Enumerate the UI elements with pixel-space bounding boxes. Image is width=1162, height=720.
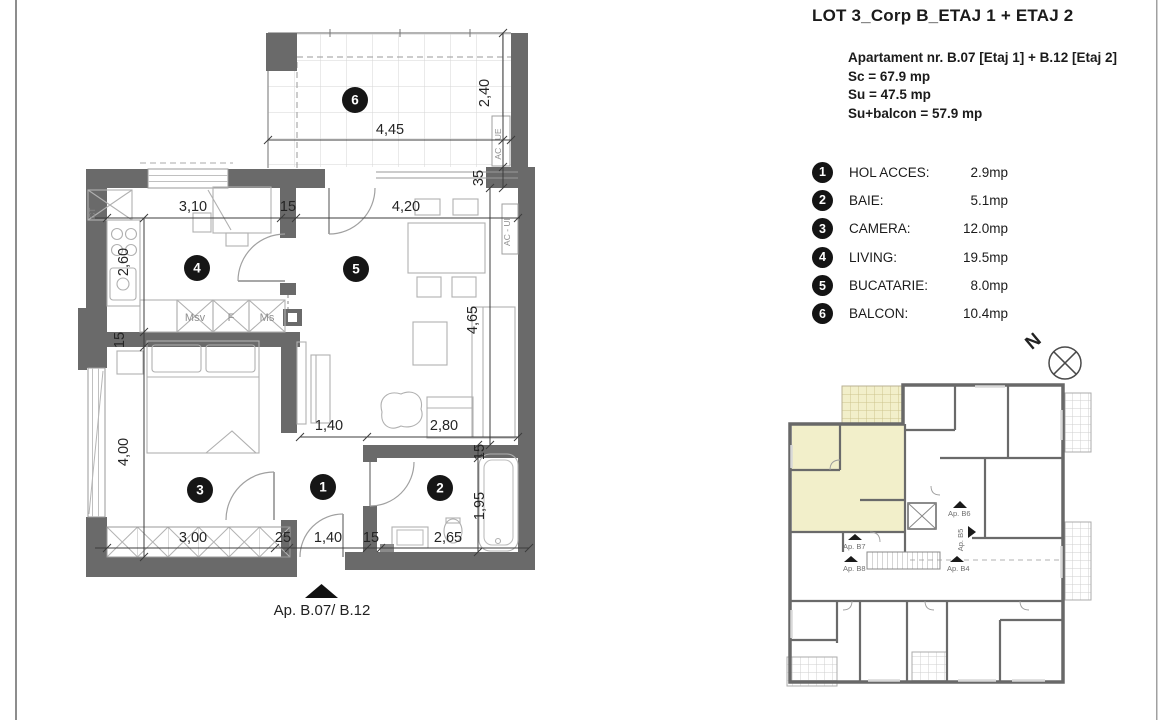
doors [226, 188, 414, 557]
drawing-sheet: 4,45 2,40 35 3,10 15 4,20 2,60 15 4,65 4… [0, 0, 1162, 720]
legend-row: 1 HOL ACCES: 2.9mp [812, 161, 1008, 183]
legend-room-label: HOL ACCES: [849, 165, 930, 180]
ac-interior-unit-label: AC - UI [502, 218, 512, 246]
dim-label: 3,00 [179, 530, 207, 546]
dim-label: 35 [471, 170, 487, 186]
keyplan-apartment-label: Ap. B5 [956, 529, 965, 552]
legend-row: 2 BAIE: 5.1mp [812, 189, 1008, 211]
legend-row: 6 BALCON: 10.4mp [812, 303, 1008, 325]
dishwasher-label: Msv [185, 312, 206, 324]
entrance-marker: Ap. B.07/ B.12 [274, 584, 371, 619]
ac-exterior-unit-label: AC - UE [493, 128, 503, 160]
room-legend: 1 HOL ACCES: 2.9mp 2 BAIE: 5.1mp 3 CAMER… [812, 161, 1008, 331]
boiler-label: CT [88, 208, 97, 219]
legend-room-area: 5.1mp [970, 193, 1008, 208]
keyplan-stairs [867, 552, 940, 569]
dim-label: 4,20 [392, 199, 420, 215]
dim-label: 4,65 [465, 306, 481, 334]
dim-label: 15 [472, 444, 488, 460]
keyplan-apartment-label: Ap. B7 [843, 542, 866, 551]
dim-label: 3,10 [179, 199, 207, 215]
dim-label: 1,40 [315, 418, 343, 434]
legend-room-area: 2.9mp [970, 165, 1008, 180]
room-number: 4 [193, 261, 201, 276]
keyplan-apartment-label: Ap. B8 [843, 564, 866, 573]
legend-room-label: BUCATARIE: [849, 278, 928, 293]
room-number-badge: 6 [812, 303, 833, 324]
legend-room-label: LIVING: [849, 250, 897, 265]
room-number: 2 [436, 481, 444, 496]
dim-label: 4,00 [116, 438, 132, 466]
usable-plus-balcony-area: Su+balcon = 57.9 mp [848, 105, 1117, 124]
balcony-floor-hatch [268, 29, 511, 168]
dim-label: 15 [280, 199, 296, 215]
dim-label: 2,40 [477, 79, 493, 107]
usable-area: Su = 47.5 mp [848, 86, 1117, 105]
room-number-badge: 2 [812, 190, 833, 211]
legend-room-label: BAIE: [849, 193, 884, 208]
page-title: LOT 3_Corp B_ETAJ 1 + ETAJ 2 [812, 6, 1073, 26]
keyplan-apartment-label: Ap. B4 [947, 564, 970, 573]
legend-room-label: BALCON: [849, 306, 908, 321]
entrance-label: Ap. B.07/ B.12 [274, 602, 371, 619]
legend-row: 3 CAMERA: 12.0mp [812, 218, 1008, 240]
dim-label: 15 [363, 530, 379, 546]
legend-room-area: 10.4mp [963, 306, 1008, 321]
furniture [88, 187, 518, 552]
dim-label: 1,95 [472, 492, 488, 520]
washer-label: Ms [260, 312, 275, 324]
room-number: 3 [196, 483, 204, 498]
apartment-info: Apartament nr. B.07 [Etaj 1] + B.12 [Eta… [848, 49, 1117, 123]
keyplan-apartment-label: Ap. B6 [948, 509, 971, 518]
keyplan-elevator [908, 503, 936, 529]
dim-label: 2,60 [116, 248, 132, 276]
key-plan: Ap. B7 Ap. B8 Ap. B6 Ap. B5 Ap. B4 [787, 385, 1091, 686]
legend-room-area: 8.0mp [970, 278, 1008, 293]
dim-label: 1,40 [314, 530, 342, 546]
room-number-badge: 5 [812, 275, 833, 296]
dim-label: 15 [112, 332, 128, 348]
fridge-label: F [228, 312, 235, 324]
legend-room-area: 12.0mp [963, 221, 1008, 236]
floor-plan: 4,45 2,40 35 3,10 15 4,20 2,60 15 4,65 4… [78, 29, 535, 619]
room-number: 1 [319, 480, 327, 495]
room-number-badge: 3 [812, 218, 833, 239]
room-number-badge: 4 [812, 247, 833, 268]
dim-label: 4,45 [376, 122, 404, 138]
room-number: 6 [351, 93, 359, 108]
dim-label: 2,80 [430, 418, 458, 434]
legend-room-area: 19.5mp [963, 250, 1008, 265]
wall-column-core [288, 313, 297, 322]
legend-row: 5 BUCATARIE: 8.0mp [812, 275, 1008, 297]
room-number: 5 [352, 262, 360, 277]
north-label: N [1021, 329, 1045, 354]
legend-row: 4 LIVING: 19.5mp [812, 246, 1008, 268]
north-compass-icon: N [1021, 329, 1081, 379]
dim-label: 25 [275, 530, 291, 546]
dim-label: 2,65 [434, 530, 462, 546]
apartment-name: Apartament nr. B.07 [Etaj 1] + B.12 [Eta… [848, 49, 1117, 68]
highlighted-apartment [792, 424, 905, 532]
legend-room-label: CAMERA: [849, 221, 911, 236]
room-number-badge: 1 [812, 162, 833, 183]
built-area: Sc = 67.9 mp [848, 68, 1117, 87]
